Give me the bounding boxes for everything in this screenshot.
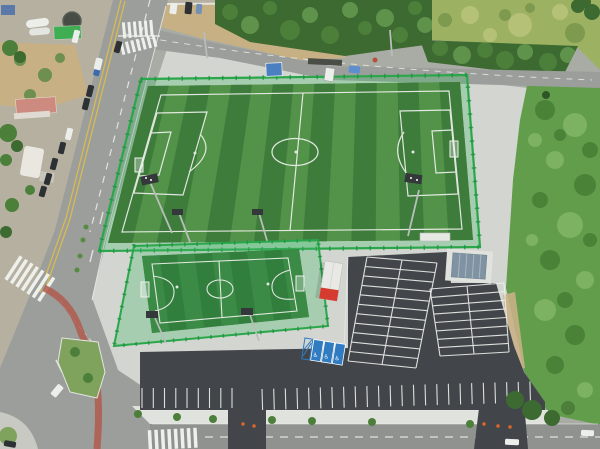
- goal-west: [135, 158, 143, 172]
- car: [505, 439, 519, 445]
- car: [196, 4, 203, 14]
- car: [581, 430, 594, 436]
- goal-east: [450, 141, 458, 157]
- goal-west: [141, 282, 149, 297]
- service-truck: [324, 68, 335, 82]
- blue-shed: [266, 63, 283, 77]
- wheelchair-icon: ♿: [334, 355, 340, 363]
- truck: [184, 2, 192, 15]
- spectator-stand: [420, 233, 450, 241]
- wheelchair-icon: ♿: [323, 353, 329, 361]
- goal-east: [296, 276, 304, 291]
- blue-tarp: [349, 66, 361, 74]
- side-entrance-driveway: [228, 408, 266, 449]
- red-equipment: [373, 58, 378, 63]
- wheelchair-icon: ♿: [312, 352, 318, 360]
- scene-canvas: ♿ ♿ ♿: [0, 0, 600, 449]
- aerial-photo: ♿ ♿ ♿: [0, 0, 600, 449]
- blue-roof-shed: [1, 5, 15, 15]
- container-unit: [445, 248, 493, 283]
